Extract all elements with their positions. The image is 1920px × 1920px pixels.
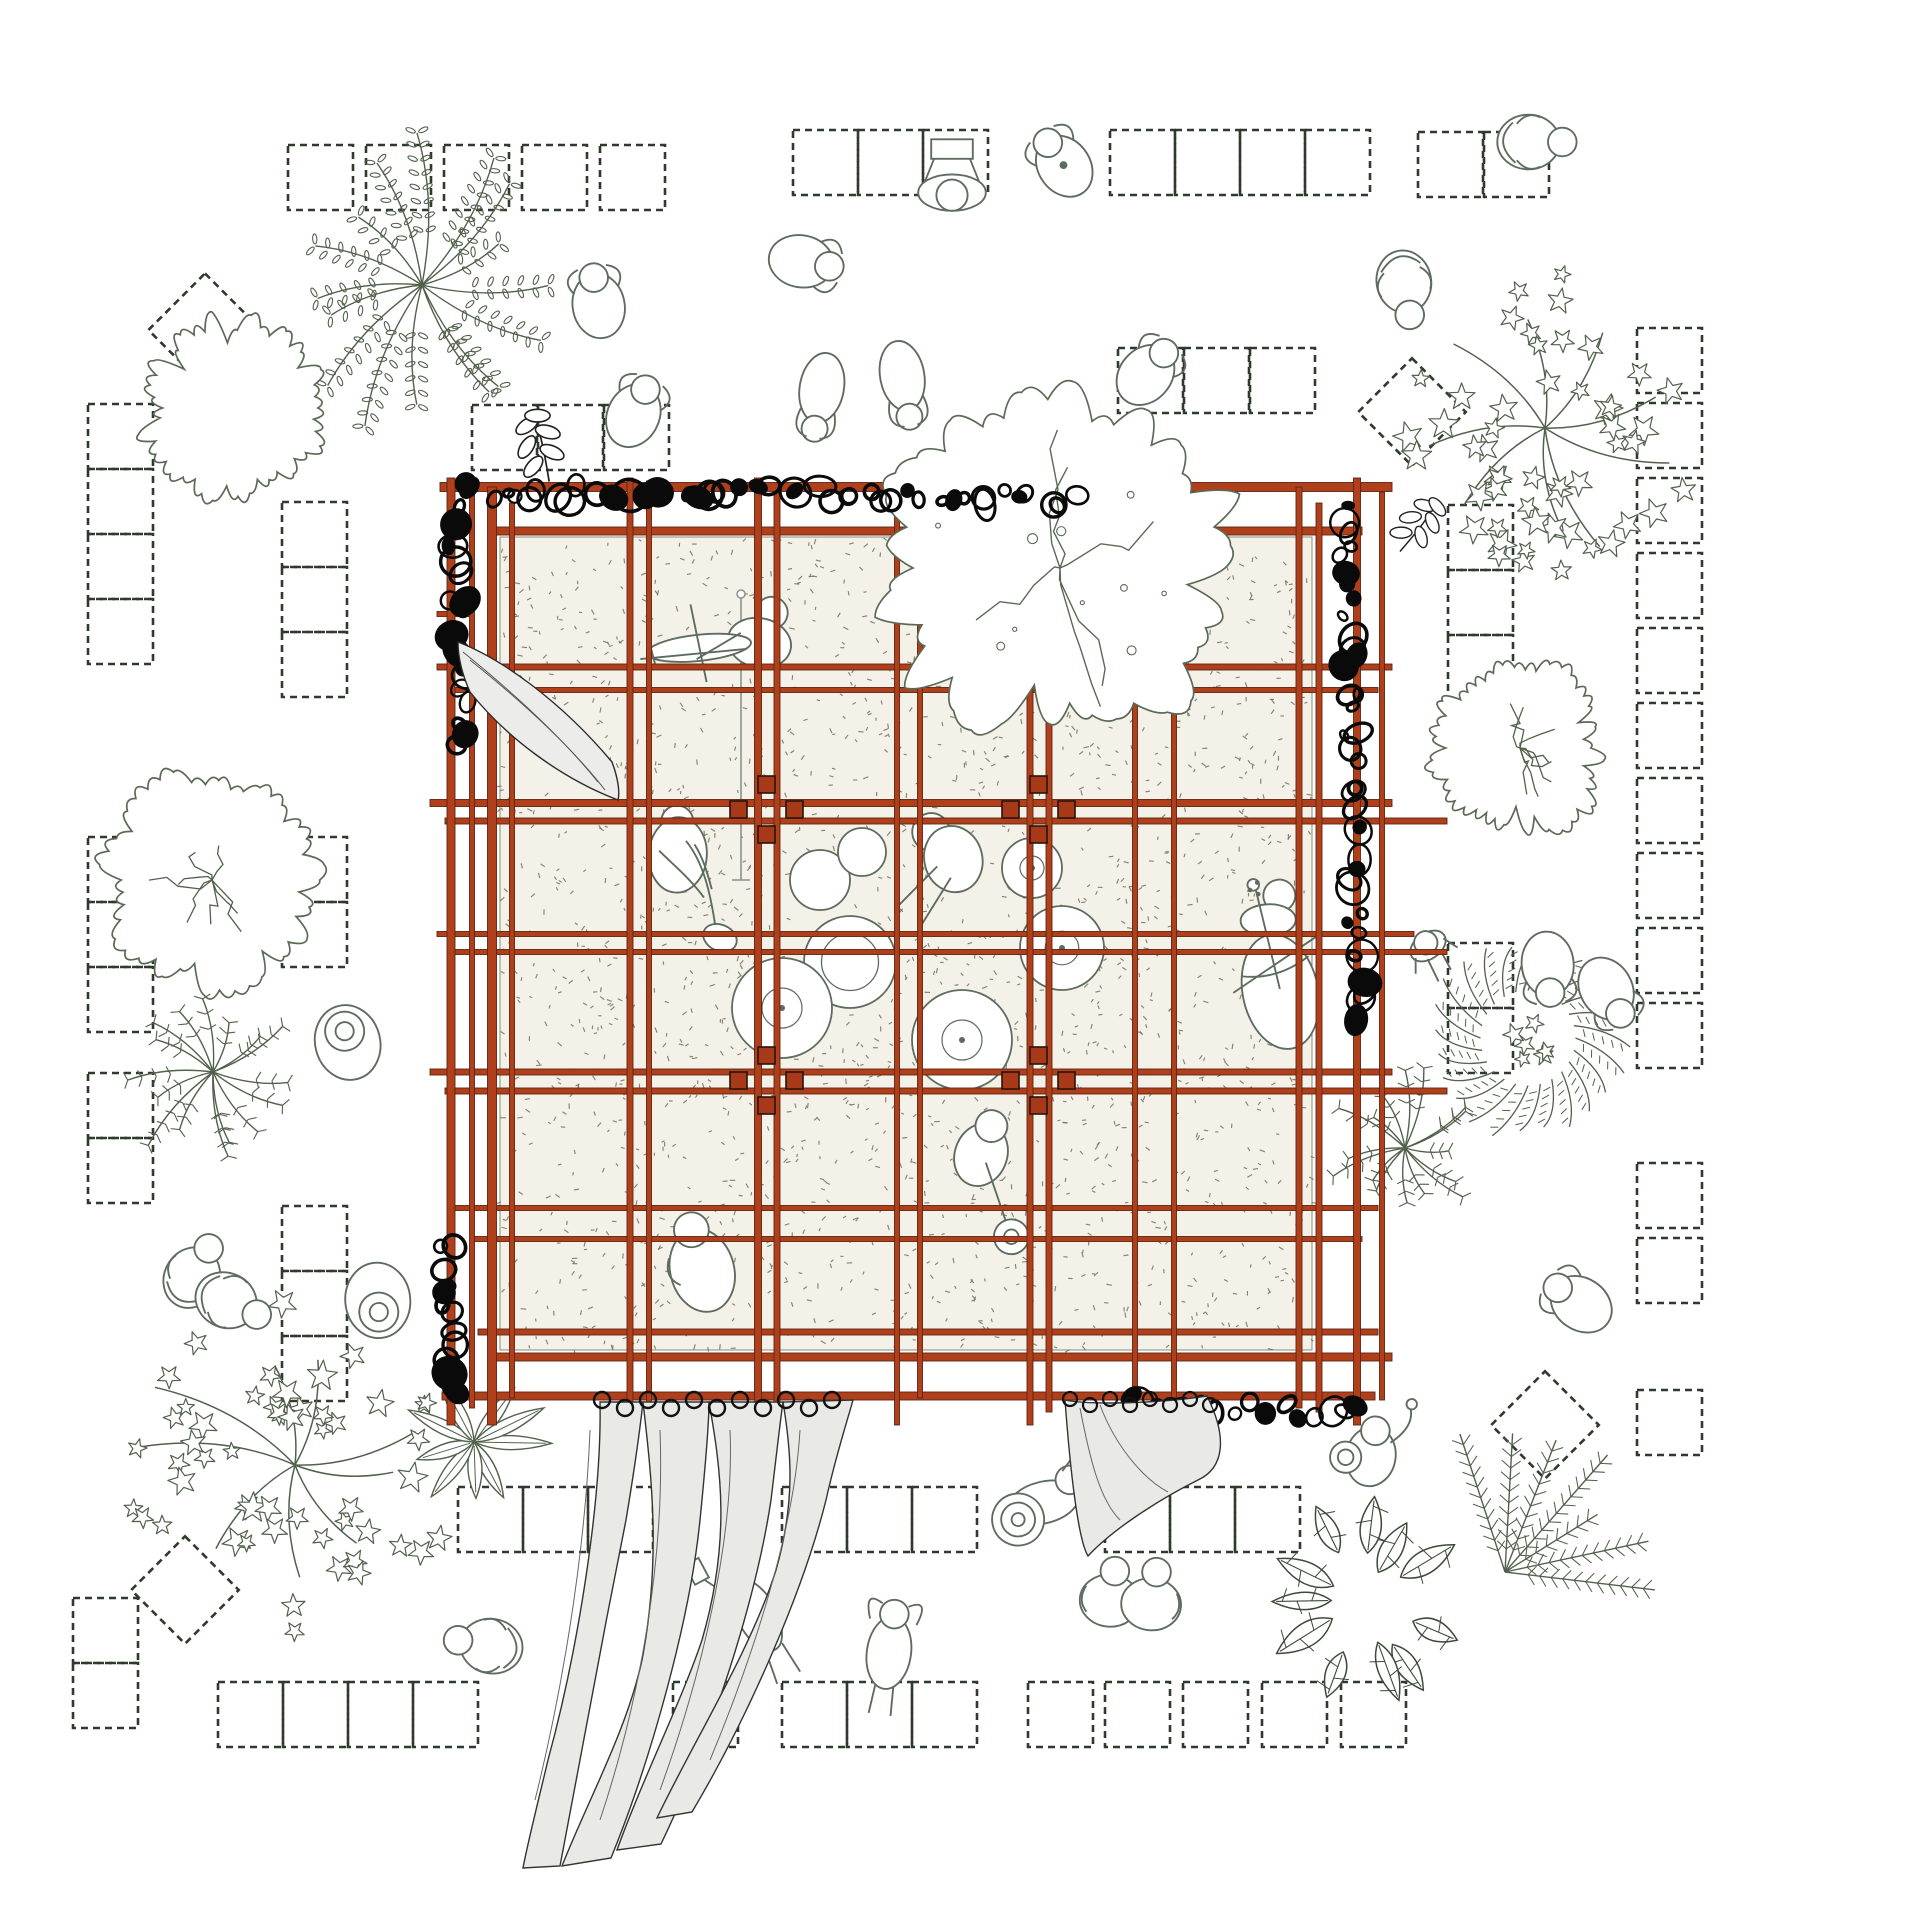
fern-leaflet	[368, 216, 376, 227]
wreath-barb	[1489, 961, 1495, 966]
frond-leaflet	[1549, 1522, 1561, 1523]
frond-leaflet	[1536, 1553, 1547, 1557]
wreath-barb	[1577, 1057, 1579, 1065]
leaf	[1639, 499, 1667, 528]
wreath-plume	[1576, 1038, 1625, 1073]
wreath-barb	[1562, 1118, 1568, 1123]
fern-leaflet	[351, 246, 356, 256]
wreath-barb	[1489, 1078, 1496, 1082]
wreath-barb	[1459, 1051, 1463, 1058]
paving-square	[282, 567, 347, 632]
wreath-barb	[1598, 1085, 1600, 1093]
fern-leaflet	[1327, 1170, 1333, 1176]
leaf-sprig	[1381, 484, 1456, 564]
wreath-plume	[1464, 962, 1487, 1015]
fern-leaflet	[425, 225, 436, 233]
fern-leaflet	[283, 1026, 291, 1031]
fern-leaflet	[1346, 1159, 1348, 1168]
fern-leaflet	[336, 376, 344, 387]
paving-square	[413, 1682, 478, 1747]
paving-square	[912, 1682, 977, 1747]
fern-leaflet	[389, 359, 399, 369]
fern-leaflet	[272, 1073, 277, 1081]
fern-leaflet	[1430, 1143, 1434, 1151]
fern-leaflet	[1449, 1151, 1452, 1159]
fern-leaflet	[321, 305, 331, 315]
fern-leaflet	[1343, 1151, 1348, 1158]
fern-leaflet	[249, 1036, 251, 1045]
column-marker	[1002, 801, 1019, 818]
fern-leaflet	[1398, 1099, 1406, 1103]
fern-leaflet	[408, 169, 419, 177]
fern-leaflet	[377, 153, 387, 163]
frond-leaflet	[1497, 1541, 1506, 1549]
person-bend	[874, 337, 933, 433]
frond-leaflet	[1569, 1485, 1571, 1497]
frond-leaflet	[1474, 1466, 1481, 1476]
wreath-plume	[1439, 1054, 1487, 1064]
wreath-barb	[1465, 1036, 1467, 1044]
frond-leaflet	[1574, 1572, 1583, 1580]
frond-leaflet	[1626, 1546, 1635, 1554]
frond-leaflet	[1615, 1548, 1624, 1556]
frond-leaflet	[1587, 1509, 1588, 1521]
leaf	[1628, 363, 1652, 386]
fern-leaflet	[374, 399, 384, 409]
paving-square	[1105, 1682, 1170, 1747]
frond-leaflet	[1620, 1577, 1629, 1585]
beam-vertical	[470, 492, 475, 1408]
fern-leaflet	[473, 171, 482, 182]
frond-leaflet	[1597, 1575, 1606, 1583]
fern-branch	[422, 285, 489, 392]
wreath-barb	[1479, 990, 1483, 997]
frond-leaflet	[1503, 1437, 1512, 1445]
wreath-barb	[1526, 1099, 1534, 1101]
site-plan-page	[0, 0, 1920, 1920]
fern-leaflet	[547, 274, 555, 285]
fern-branch	[158, 1072, 213, 1097]
fern-leaflet	[487, 289, 495, 300]
frond-leaflet	[1560, 1560, 1569, 1568]
cloud-tree-outline	[1425, 660, 1606, 835]
cloud-tree-outline	[137, 312, 325, 504]
beam-vertical	[488, 487, 497, 1425]
fern-leaflet	[490, 310, 500, 320]
drum	[838, 828, 886, 876]
fern-leaflet	[500, 382, 511, 388]
fern-leaflet	[483, 180, 493, 185]
fern-leaflet	[325, 369, 336, 376]
frond-leaflet	[1510, 1473, 1520, 1480]
leaf	[398, 1462, 428, 1492]
wreath-barb	[1490, 971, 1496, 976]
fern-leaflet	[391, 223, 401, 228]
fern-leaflet	[370, 267, 380, 277]
vine-scribble	[1226, 1405, 1243, 1422]
frond-leaflet	[1567, 1534, 1578, 1538]
frond-leaflet	[1556, 1540, 1567, 1544]
leaf	[1490, 394, 1518, 421]
fern-leaflet	[494, 183, 502, 194]
fern-leaflet	[528, 326, 538, 336]
fern-leaflet	[460, 196, 469, 207]
fern-leaflet	[413, 226, 424, 234]
wreath-barb	[1582, 1103, 1586, 1110]
frond-leaflet	[1536, 1541, 1537, 1553]
leaf	[390, 1534, 412, 1556]
fern-leaflet	[1414, 1076, 1421, 1081]
leaf	[184, 1332, 206, 1355]
paving-square	[88, 1138, 153, 1203]
column-marker	[1030, 1097, 1047, 1114]
frond-leaflet	[1540, 1576, 1546, 1586]
fern-leaflet	[238, 1105, 247, 1107]
beam-horizontal	[430, 1069, 1392, 1075]
wreath-barb	[1481, 1081, 1488, 1085]
wreath-barb	[1515, 1123, 1523, 1125]
paving-square	[858, 130, 923, 195]
frond-leaflet	[1609, 1576, 1618, 1584]
fern-leaflet	[200, 1027, 209, 1029]
fern-leaflet	[375, 185, 385, 190]
leaf	[1509, 282, 1529, 302]
fern-leaflet	[180, 1130, 185, 1137]
paving-square	[1637, 853, 1702, 918]
cymbal-bell	[959, 1037, 965, 1043]
fern-leaflet	[1397, 1180, 1405, 1184]
beam-horizontal	[451, 1206, 1378, 1211]
paving-square	[1418, 132, 1483, 197]
wreath-plume	[1484, 948, 1494, 1004]
fern-leaflet	[318, 250, 328, 260]
fern-leaflet	[370, 413, 380, 423]
beam-vertical	[510, 503, 515, 1398]
paving-square	[1637, 703, 1702, 768]
fern-leaflet	[197, 1012, 206, 1014]
paving-square	[88, 599, 153, 664]
fern-leaflet	[157, 1135, 161, 1143]
fern-leaflet	[382, 166, 392, 176]
paving-square	[1235, 1487, 1300, 1552]
frond-leaflet	[1587, 1521, 1598, 1525]
ivy-branch	[295, 1432, 416, 1465]
fern-leaflet	[418, 404, 429, 412]
wreath-barb	[1465, 1088, 1472, 1092]
wreath-barb	[1560, 1099, 1566, 1104]
fern-leaflet	[373, 300, 378, 310]
fern-leaflet	[502, 193, 513, 200]
wreath-barb	[1621, 1043, 1623, 1051]
fern-leaflet	[310, 287, 319, 298]
fern-leaflet	[475, 316, 479, 326]
wreath-barb	[1593, 1033, 1595, 1041]
wreath-barb	[1485, 1101, 1493, 1103]
fern-leaflet	[139, 1078, 142, 1087]
fern-leaflet	[180, 1004, 185, 1011]
paving-square	[73, 1663, 138, 1728]
vine-scribble	[729, 477, 749, 497]
monstera-leaf	[1267, 1604, 1341, 1669]
fern-leaflet	[362, 397, 372, 402]
fern-leaflet	[345, 365, 353, 376]
wreath-barb	[1476, 1010, 1478, 1018]
fern-leaflet	[219, 1027, 226, 1033]
leaf	[407, 1429, 429, 1451]
frond-leaflet	[1578, 1488, 1590, 1489]
person-crouch	[565, 259, 630, 342]
fern-leaflet	[171, 1042, 179, 1046]
paving-square	[600, 145, 665, 210]
fern-leaflet	[380, 227, 388, 238]
wreath-plume	[1503, 947, 1513, 997]
frond-leaflet	[1643, 1589, 1649, 1599]
frond-leaflet	[1577, 1515, 1578, 1527]
paving-square	[793, 130, 858, 195]
person-crouch	[1518, 929, 1577, 1009]
fern-leaflet	[1421, 1080, 1430, 1082]
fern-branch	[422, 285, 548, 293]
wreath-barb	[1522, 1107, 1530, 1109]
frond-leaflet	[1632, 1579, 1641, 1587]
frond-leaflet	[1532, 1527, 1534, 1539]
fern-leaflet	[516, 320, 526, 330]
paving-square	[458, 1487, 523, 1552]
wreath-barb	[1508, 968, 1515, 972]
fern-leaflet	[253, 1132, 257, 1140]
frond-leaflet	[1576, 1477, 1578, 1489]
person-bend	[791, 349, 850, 445]
fern-leaflet	[471, 247, 476, 257]
fern-leaflet	[1373, 1180, 1376, 1188]
fern-leaflet	[1416, 1107, 1425, 1109]
fern-leaflet	[357, 205, 365, 216]
fern-leaflet	[496, 232, 501, 242]
fern-branch	[213, 1072, 258, 1132]
fern-leaflet	[208, 1025, 216, 1030]
fern-branch	[1405, 1148, 1425, 1194]
fern-leaflet	[222, 1017, 229, 1023]
microphone	[737, 590, 745, 598]
frond-leaflet	[1517, 1543, 1519, 1555]
fern-leaflet	[418, 126, 429, 134]
frond-leaflet	[1551, 1578, 1557, 1588]
fern-leaflet	[1434, 1164, 1442, 1169]
wreath-barb	[1519, 1115, 1527, 1117]
beam-vertical	[1296, 487, 1302, 1408]
fern-branch	[1384, 1097, 1405, 1149]
frond-leaflet	[1534, 1539, 1546, 1540]
column-marker	[1058, 1072, 1075, 1089]
wreath-barb	[1450, 979, 1452, 987]
frond-leaflet	[1632, 1587, 1638, 1597]
leaf	[153, 1515, 172, 1534]
fern-leaflet	[479, 159, 488, 170]
frond-leaflet	[1582, 1555, 1591, 1563]
beam-vertical	[1380, 492, 1385, 1400]
paving-square	[282, 502, 347, 567]
leaf	[356, 1519, 381, 1544]
fern-leaflet	[489, 168, 499, 173]
wreath-barb	[1567, 991, 1574, 995]
paving-square	[1637, 1163, 1702, 1228]
fern-leaflet	[424, 211, 435, 219]
fern-leaflet	[1367, 1189, 1376, 1191]
wreath-barb	[1488, 952, 1494, 957]
leaf	[168, 1467, 195, 1495]
leaf	[1551, 330, 1574, 352]
fern-leaflet	[420, 154, 431, 162]
frond-leaflet	[1499, 1506, 1508, 1514]
person-sit	[439, 1611, 527, 1679]
frond-leaflet	[1583, 1468, 1585, 1480]
fern-leaflet	[1452, 1111, 1453, 1120]
fern-leaflet	[1374, 1109, 1377, 1117]
curtain-right	[1065, 1396, 1220, 1556]
fern-leaflet	[483, 239, 488, 249]
frond-leaflet	[1488, 1509, 1495, 1519]
fern-leaflet	[288, 1075, 293, 1083]
column-marker	[730, 1072, 747, 1089]
vine-scribble	[1330, 865, 1376, 911]
paving-square	[1637, 928, 1702, 993]
wreath-barb	[1493, 1094, 1501, 1096]
column-marker	[1002, 1072, 1019, 1089]
wreath-barb	[1457, 1091, 1464, 1095]
paving-square	[1305, 130, 1370, 195]
wreath-plume	[1436, 1004, 1481, 1038]
column-marker	[758, 776, 775, 793]
paving-square	[283, 1682, 348, 1747]
cloud-tree-outline	[95, 769, 326, 999]
wreath-barb	[1473, 1084, 1480, 1088]
fern-leaflet	[372, 314, 383, 321]
frond-leaflet	[1502, 1460, 1511, 1468]
fern-leaflet	[1445, 1170, 1453, 1175]
frond-leaflet	[1501, 1472, 1510, 1480]
ivy-branch	[295, 1465, 393, 1476]
frond-leaflet	[1571, 1497, 1583, 1498]
fern-leaflet	[387, 178, 397, 188]
fern-leaflet	[383, 321, 391, 332]
wreath-barb	[1475, 981, 1479, 988]
fern-branch	[412, 285, 422, 405]
wreath-barb	[1539, 1111, 1546, 1115]
wreath-barb	[1542, 1095, 1549, 1099]
fern-leaflet	[364, 343, 372, 354]
beam-vertical	[627, 478, 633, 1425]
frond-leaflet	[1604, 1551, 1613, 1559]
paving-diamond	[1358, 358, 1465, 465]
person-dot	[1018, 116, 1105, 208]
fern-leaflet	[171, 1129, 180, 1130]
frond-leaflet	[1533, 1474, 1539, 1484]
frond-leaflet	[1643, 1580, 1652, 1588]
paving-square	[522, 145, 587, 210]
fern-leaflet	[1406, 1191, 1414, 1194]
frond-leaflet	[1516, 1518, 1522, 1528]
fern-leaflet	[357, 262, 367, 272]
paving-square	[847, 1682, 912, 1747]
wreath-barb	[1586, 1017, 1590, 1024]
wreath-barb	[1561, 1109, 1567, 1114]
fern-leaflet	[358, 227, 369, 234]
fern-leaflet	[1407, 1099, 1415, 1103]
fern-leaflet	[368, 277, 377, 288]
leaf	[1429, 409, 1459, 438]
fern-leaflet	[421, 168, 432, 176]
frond-leaflet	[1556, 1513, 1568, 1514]
leaf	[194, 1448, 215, 1468]
paving-square	[1637, 553, 1702, 618]
fern-leaflet	[367, 384, 377, 389]
fern-leaflet	[256, 1079, 258, 1088]
fern-leaflet	[312, 234, 317, 244]
monstera-leaf	[1407, 1607, 1464, 1655]
paving-square	[782, 1682, 847, 1747]
frond-leaflet	[1551, 1569, 1560, 1577]
beam-vertical	[1316, 503, 1322, 1412]
frond-leaflet	[1524, 1496, 1530, 1506]
leaf	[262, 1519, 288, 1543]
column-marker	[730, 801, 747, 818]
person-sit	[1497, 115, 1576, 170]
fern-leaflet	[503, 172, 511, 183]
leaf	[1412, 370, 1430, 387]
wreath-barb	[1538, 1119, 1545, 1123]
frond-leaflet	[1549, 1563, 1558, 1571]
leaf	[313, 1529, 333, 1549]
fern-leaflet	[541, 331, 551, 341]
fern-leaflet	[193, 1105, 198, 1112]
wreath-barb	[1457, 1032, 1459, 1040]
wreath-barb	[1543, 1087, 1550, 1091]
fern-leaflet	[418, 346, 429, 354]
fern-leaflet	[288, 1083, 290, 1092]
frond-leaflet	[1463, 1435, 1470, 1445]
wreath-barb	[1500, 1088, 1508, 1090]
wreath-barb	[1587, 1071, 1589, 1079]
wreath-barb	[1578, 1003, 1583, 1009]
fern-leaflet	[171, 1012, 180, 1013]
fern-leaflet	[369, 238, 380, 245]
wreath-barb	[1602, 1036, 1604, 1044]
fern-leaflet	[370, 173, 380, 178]
fern-leaflet	[305, 246, 315, 256]
leaf	[1448, 383, 1475, 409]
fern-leaflet	[1460, 1197, 1462, 1206]
frond-leaflet	[1620, 1586, 1626, 1596]
fern-leaflet	[186, 1036, 195, 1037]
fern-leaflet	[419, 140, 430, 148]
frond-leaflet	[1593, 1472, 1605, 1473]
wreath-barb	[1473, 1039, 1475, 1047]
fern-leaflet	[283, 1099, 290, 1105]
paving-square	[288, 145, 353, 210]
beam-horizontal	[472, 1237, 1362, 1242]
wreath-barb	[1570, 1003, 1575, 1009]
paving-square	[912, 1487, 977, 1552]
wreath-plume	[1544, 1079, 1554, 1127]
fern-leaflet	[194, 996, 203, 998]
frond-leaflet	[1509, 1484, 1519, 1491]
fern-leaflet	[465, 299, 475, 309]
fern-leaflet	[1339, 1099, 1340, 1108]
fern-leaflet	[248, 1118, 257, 1120]
frond-leaflet	[1467, 1445, 1474, 1455]
wreath-barb	[1463, 994, 1465, 1002]
frond-leaflet	[1546, 1546, 1557, 1550]
